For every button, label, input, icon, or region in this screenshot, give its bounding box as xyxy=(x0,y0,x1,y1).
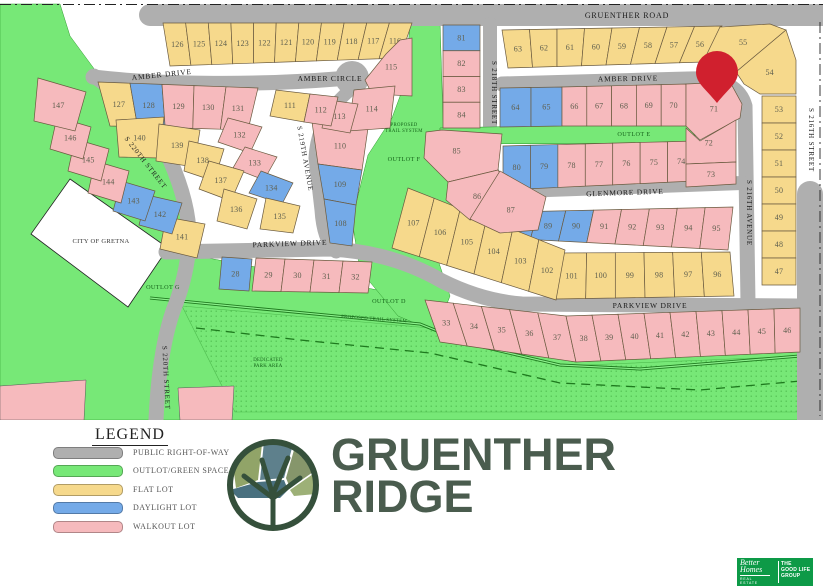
lot-number-55: 55 xyxy=(739,38,747,47)
lot-number-60: 60 xyxy=(592,42,600,51)
street-label: AMBER DRIVE xyxy=(598,73,658,83)
lot-number-53: 53 xyxy=(775,105,783,114)
lot-number-126: 126 xyxy=(171,40,184,49)
lot-number-114: 114 xyxy=(366,104,378,113)
lot-number-105: 105 xyxy=(461,237,474,246)
lot-number-65: 65 xyxy=(542,102,550,111)
lot-number-30: 30 xyxy=(293,271,301,280)
lot-number-63: 63 xyxy=(514,44,522,53)
lot-number-131: 131 xyxy=(232,104,245,113)
legend-swatch-flat xyxy=(53,484,123,496)
lot-number-80: 80 xyxy=(513,163,521,172)
note-label: PARK AREA xyxy=(253,364,282,369)
lot-number-59: 59 xyxy=(618,42,626,51)
lot-number-78: 78 xyxy=(567,161,575,170)
note-label: DEDICATED xyxy=(253,358,283,363)
lot-number-107: 107 xyxy=(407,218,420,227)
lot-number-61: 61 xyxy=(566,43,574,52)
lot-number-132: 132 xyxy=(233,131,246,140)
lot-number-37: 37 xyxy=(553,333,561,342)
lot-number-35: 35 xyxy=(498,326,506,335)
street-label: S 218TH STREET xyxy=(490,61,498,125)
lot-number-54: 54 xyxy=(765,68,773,77)
lot-number-41: 41 xyxy=(656,331,664,340)
lot-number-52: 52 xyxy=(775,132,783,141)
lot-number-92: 92 xyxy=(628,223,636,232)
lot-number-98: 98 xyxy=(655,270,663,279)
lot-number-113: 113 xyxy=(333,112,345,121)
lot-number-89: 89 xyxy=(544,221,552,230)
legend-swatch-daylight xyxy=(53,502,123,514)
lot-number-32: 32 xyxy=(351,273,359,282)
lot-number-48: 48 xyxy=(775,240,783,249)
lot-number-104: 104 xyxy=(487,247,500,256)
brokerage-logo-divider xyxy=(778,561,779,583)
lot-number-29: 29 xyxy=(264,270,272,279)
outlot-label: OUTLOT D xyxy=(372,298,406,305)
lot-number-117: 117 xyxy=(367,37,379,46)
lot-number-46: 46 xyxy=(783,326,791,335)
lot-number-96: 96 xyxy=(713,270,721,279)
legend-swatch-road xyxy=(53,447,123,459)
legend-label-daylight: DAYLIGHT LOT xyxy=(133,503,197,512)
development-name-line1: GRUENTHER xyxy=(331,434,616,476)
lot-number-28: 28 xyxy=(231,270,239,279)
lot-number-66: 66 xyxy=(570,102,578,111)
street-label: S 216TH STREET xyxy=(807,108,815,172)
note-label: TRAIL SYSTEM xyxy=(385,129,423,134)
lot-number-124: 124 xyxy=(215,39,228,48)
lot-number-95: 95 xyxy=(712,224,720,233)
legend-swatch-walkout xyxy=(53,521,123,533)
lot-number-44: 44 xyxy=(732,328,740,337)
lot-number-86: 86 xyxy=(473,192,481,201)
lot-number-42: 42 xyxy=(681,330,689,339)
lot-number-50: 50 xyxy=(775,186,783,195)
edge-lot-stub-1 xyxy=(178,386,234,420)
development-name: GRUENTHER RIDGE xyxy=(331,434,616,518)
lot-number-75: 75 xyxy=(650,158,658,167)
lot-number-72: 72 xyxy=(705,139,713,148)
lot-number-109: 109 xyxy=(334,180,347,189)
lot-number-93: 93 xyxy=(656,223,664,232)
lot-number-127: 127 xyxy=(113,100,126,109)
legend-title: LEGEND xyxy=(92,426,168,446)
lot-number-84: 84 xyxy=(457,111,465,120)
brokerage-tagline-line: GROUP xyxy=(781,573,813,579)
lot-number-62: 62 xyxy=(540,44,548,53)
lot-number-144: 144 xyxy=(102,178,115,187)
lot-number-137: 137 xyxy=(214,176,227,185)
lot-number-36: 36 xyxy=(525,329,533,338)
lot-number-115: 115 xyxy=(385,63,397,72)
brokerage-tagline: THEGOOD LIFEGROUP xyxy=(781,558,813,586)
lot-number-112: 112 xyxy=(315,105,327,114)
lot-number-47: 47 xyxy=(775,267,783,276)
lot-number-123: 123 xyxy=(236,39,249,48)
legend-label-road: PUBLIC RIGHT-OF-WAY xyxy=(133,448,230,457)
lot-number-43: 43 xyxy=(707,329,715,338)
lot-number-71: 71 xyxy=(710,105,718,114)
lot-number-49: 49 xyxy=(775,213,783,222)
lot-number-142: 142 xyxy=(154,210,167,219)
plat-map: 1261251241231221211201191181171166362616… xyxy=(0,0,823,420)
lot-number-34: 34 xyxy=(470,322,478,331)
lot-number-83: 83 xyxy=(457,85,465,94)
lot-number-139: 139 xyxy=(171,141,184,150)
lot-number-129: 129 xyxy=(172,102,185,111)
lot-number-136: 136 xyxy=(230,205,243,214)
lot-number-38: 38 xyxy=(580,334,588,343)
lot-number-45: 45 xyxy=(758,327,766,336)
lot-number-111: 111 xyxy=(284,101,296,110)
outlot-label: OUTLOT E xyxy=(617,131,650,138)
lot-number-70: 70 xyxy=(669,101,677,110)
note-label: CITY OF GRETNA xyxy=(72,238,129,245)
note-label: PROPOSED xyxy=(391,123,418,128)
lot-number-73: 73 xyxy=(707,170,715,179)
lot-number-108: 108 xyxy=(334,219,347,228)
lot-number-79: 79 xyxy=(540,162,548,171)
lot-number-64: 64 xyxy=(511,103,519,112)
street-label: GRUENTHER ROAD xyxy=(585,11,669,20)
edge-lot-stub-0 xyxy=(0,380,86,420)
legend-label-green: OUTLOT/GREEN SPACE xyxy=(133,466,229,475)
lot-number-125: 125 xyxy=(193,40,206,49)
lot-number-57: 57 xyxy=(670,41,678,50)
lot-number-122: 122 xyxy=(258,38,271,47)
lot-number-56: 56 xyxy=(696,40,704,49)
lot-number-120: 120 xyxy=(302,38,315,47)
lot-number-31: 31 xyxy=(322,272,330,281)
lot-number-146: 146 xyxy=(64,134,77,143)
development-name-line2: RIDGE xyxy=(331,476,616,518)
lot-number-74: 74 xyxy=(677,157,685,166)
outlot-label: OUTLOT F xyxy=(388,156,421,163)
outlot-label: OUTLOT G xyxy=(146,284,180,291)
lot-number-119: 119 xyxy=(324,37,336,46)
legend-label-walkout: WALKOUT LOT xyxy=(133,522,195,531)
lot-number-147: 147 xyxy=(52,101,65,110)
lot-number-33: 33 xyxy=(442,318,450,327)
lot-number-69: 69 xyxy=(645,101,653,110)
lot-number-101: 101 xyxy=(565,271,578,280)
legend-swatch-green xyxy=(53,465,123,477)
brokerage-logo: Better Homes REAL ESTATE THEGOOD LIFEGRO… xyxy=(737,558,813,586)
lot-number-135: 135 xyxy=(273,212,286,221)
lot-number-77: 77 xyxy=(595,160,603,169)
lot-number-99: 99 xyxy=(626,271,634,280)
lot-number-67: 67 xyxy=(595,102,603,111)
lot-number-81: 81 xyxy=(457,33,465,42)
lot-number-102: 102 xyxy=(541,266,554,275)
lot-number-90: 90 xyxy=(572,222,580,231)
lot-number-39: 39 xyxy=(605,333,613,342)
lot-number-121: 121 xyxy=(280,38,293,47)
lot-number-106: 106 xyxy=(434,228,447,237)
lot-number-143: 143 xyxy=(127,197,140,206)
lot-number-128: 128 xyxy=(142,101,155,110)
lot-number-68: 68 xyxy=(620,101,628,110)
street-label: AMBER CIRCLE xyxy=(298,74,363,83)
lot-number-85: 85 xyxy=(452,147,460,156)
lot-number-97: 97 xyxy=(684,270,692,279)
street-label: PARKVIEW DRIVE xyxy=(613,301,688,310)
lot-number-134: 134 xyxy=(265,183,278,192)
lot-number-141: 141 xyxy=(176,233,189,242)
lot-number-76: 76 xyxy=(622,159,630,168)
brokerage-sub: REAL ESTATE xyxy=(740,575,770,585)
lot-number-82: 82 xyxy=(457,59,465,68)
lot-number-130: 130 xyxy=(202,103,215,112)
lot-number-103: 103 xyxy=(514,256,527,265)
lot-number-51: 51 xyxy=(775,159,783,168)
flyer: { "map": { "colors": { "road": "#afafaf"… xyxy=(0,0,823,588)
lot-number-58: 58 xyxy=(644,41,652,50)
lot-number-87: 87 xyxy=(507,206,515,215)
lot-number-100: 100 xyxy=(594,271,607,280)
lot-number-133: 133 xyxy=(248,159,261,168)
lot-number-118: 118 xyxy=(345,37,357,46)
lot-number-40: 40 xyxy=(630,332,638,341)
lot-number-110: 110 xyxy=(334,142,346,151)
tree-logo-icon xyxy=(224,436,322,534)
brokerage-logo-left: Better Homes REAL ESTATE xyxy=(737,558,776,586)
street-label: S 216TH AVENUE xyxy=(745,180,753,246)
legend-label-flat: FLAT LOT xyxy=(133,485,174,494)
lot-number-91: 91 xyxy=(600,222,608,231)
lot-number-94: 94 xyxy=(684,223,692,232)
lot-number-138: 138 xyxy=(196,156,209,165)
plat-map-svg: 1261251241231221211201191181171166362616… xyxy=(0,0,823,420)
brokerage-name-line2: Homes xyxy=(740,566,776,573)
